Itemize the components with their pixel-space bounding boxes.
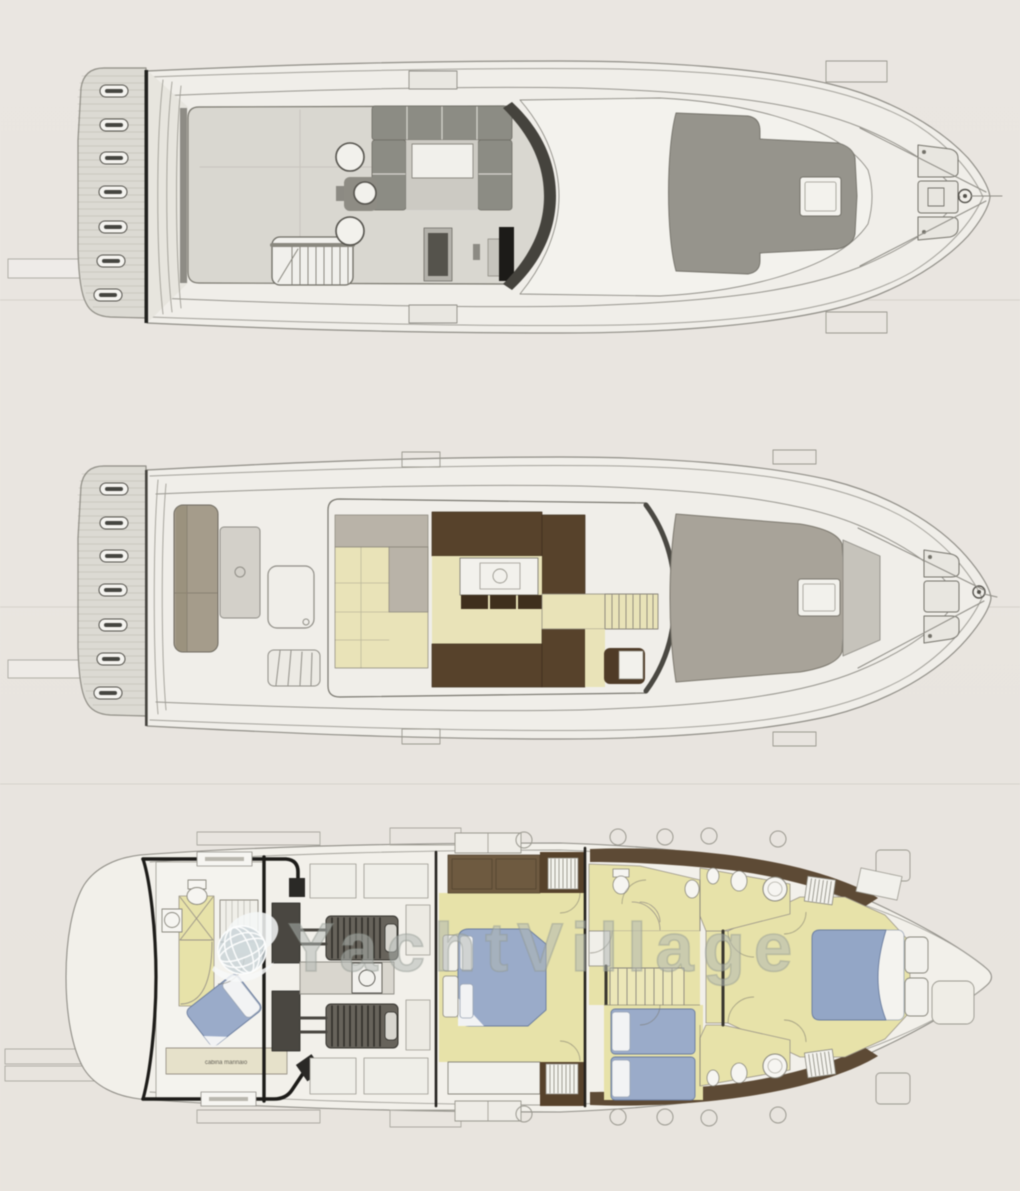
svg-text:YachtVillage: YachtVillage	[288, 909, 801, 986]
svg-text:cabina marinaio: cabina marinaio	[205, 1060, 248, 1066]
